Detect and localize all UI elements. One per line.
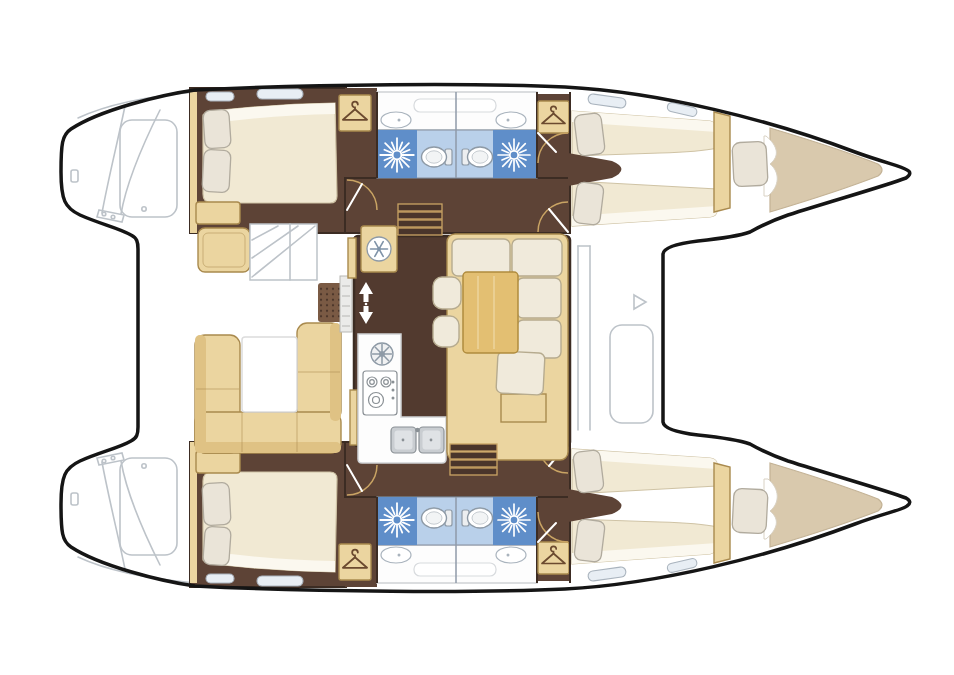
head-compartments bbox=[377, 92, 537, 178]
companionway-steps-starboard bbox=[398, 204, 442, 235]
floor-plan-svg bbox=[0, 0, 954, 675]
louver-door bbox=[340, 276, 352, 332]
dinette-table bbox=[463, 272, 518, 353]
drain-dot bbox=[430, 439, 433, 442]
step bbox=[450, 468, 497, 475]
cockpit-table bbox=[242, 337, 297, 412]
step bbox=[450, 460, 497, 467]
settee-cushion bbox=[512, 239, 562, 276]
settee-cushion bbox=[452, 239, 510, 276]
ottoman bbox=[433, 277, 461, 309]
knob bbox=[392, 381, 395, 384]
companionway-wall bbox=[350, 390, 357, 445]
step bbox=[450, 444, 497, 451]
settee-cushion bbox=[517, 278, 561, 318]
companionway-louver-panel bbox=[340, 276, 352, 332]
bow-bulkhead bbox=[714, 112, 730, 212]
step bbox=[398, 204, 442, 211]
hull-passageway bbox=[345, 178, 570, 233]
step bbox=[398, 220, 442, 227]
shower-tray bbox=[493, 130, 537, 178]
toilet-icon bbox=[462, 147, 493, 167]
backrest bbox=[195, 335, 206, 453]
salon bbox=[348, 204, 570, 475]
vanity-shelf bbox=[414, 99, 496, 112]
pillow bbox=[573, 182, 605, 226]
companionway-wall bbox=[348, 238, 356, 278]
pillow bbox=[203, 109, 232, 149]
snowflake-icon bbox=[367, 237, 391, 261]
ottoman bbox=[433, 316, 459, 347]
hull-window bbox=[206, 92, 234, 101]
aft-bench-seat bbox=[198, 228, 250, 272]
settee-cushion bbox=[496, 351, 545, 395]
knob bbox=[392, 397, 395, 400]
helm-steps bbox=[250, 224, 317, 280]
hull-window bbox=[257, 89, 303, 99]
faucet bbox=[415, 428, 419, 432]
wardrobe-locker bbox=[339, 95, 371, 131]
knob bbox=[392, 389, 395, 392]
cabin-shelf bbox=[196, 202, 240, 224]
companionway-steps-port bbox=[450, 444, 497, 475]
step bbox=[398, 228, 442, 235]
drain-dot bbox=[398, 119, 401, 122]
drain-dot bbox=[402, 439, 405, 442]
backrest bbox=[195, 442, 341, 453]
washbasin bbox=[496, 112, 526, 128]
pillow bbox=[732, 141, 768, 187]
aft-cabin bbox=[190, 88, 346, 233]
stove-icon bbox=[363, 371, 397, 415]
step bbox=[398, 212, 442, 219]
settee-step bbox=[501, 394, 546, 422]
toilet-icon bbox=[422, 147, 453, 167]
step bbox=[450, 452, 497, 459]
catamaran-floor-plan bbox=[0, 0, 954, 675]
fan-vent-icon bbox=[371, 343, 393, 365]
drain-dot bbox=[507, 119, 510, 122]
pillow bbox=[202, 149, 231, 192]
washbasin bbox=[381, 112, 411, 128]
dinette bbox=[433, 234, 568, 460]
pillow bbox=[574, 112, 606, 156]
arrow-dot bbox=[365, 303, 368, 306]
